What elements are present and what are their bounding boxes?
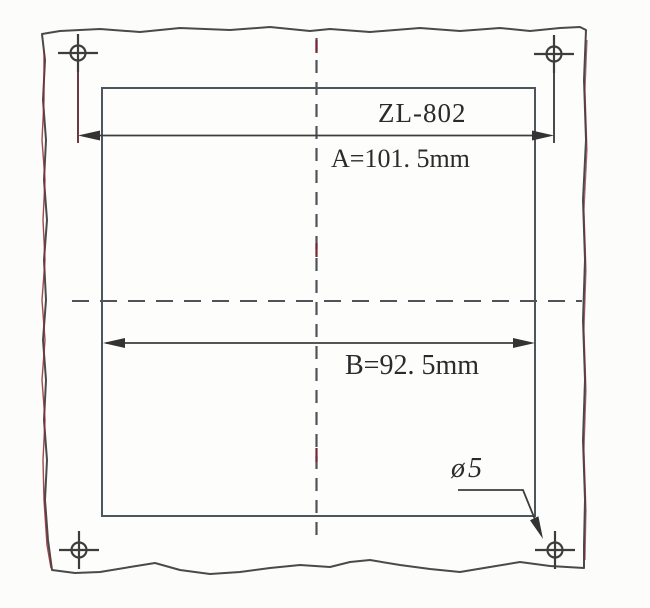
dimension-a-label: A=101. 5mm: [331, 146, 470, 172]
model-number-label: ZL-802: [378, 100, 466, 127]
hole-diameter-label: ø5: [451, 455, 485, 483]
drawing-canvas: [0, 0, 650, 608]
dimension-b-label: B=92. 5mm: [345, 352, 479, 380]
panel-cutout-drawing: ZL-802 A=101. 5mm B=92. 5mm ø5: [0, 0, 650, 608]
